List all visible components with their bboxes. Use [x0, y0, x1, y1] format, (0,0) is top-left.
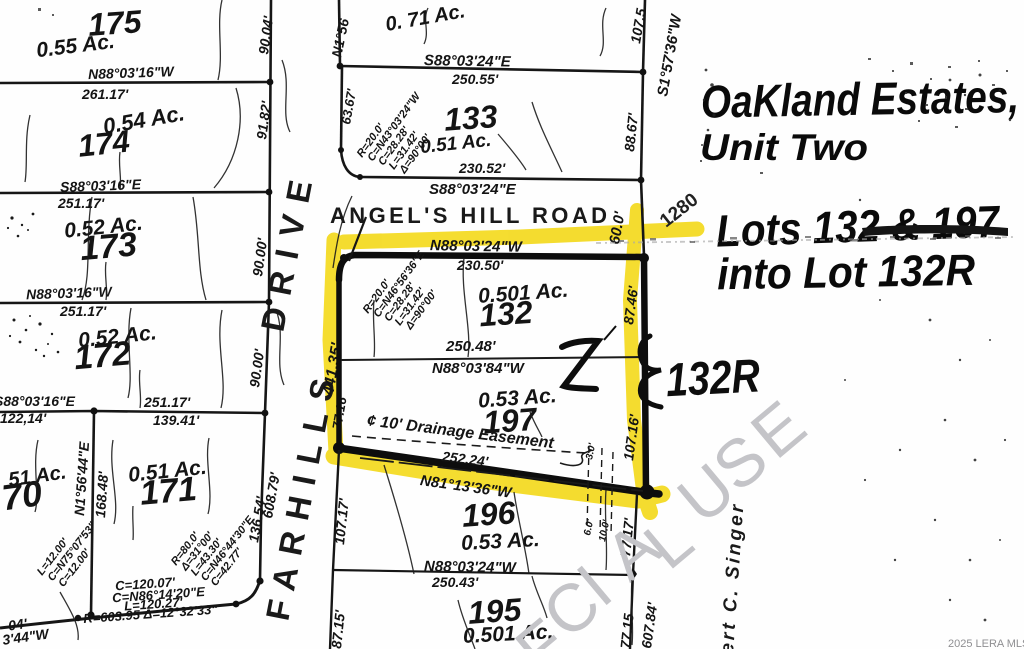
svg-text:N88°03'84"W: N88°03'84"W — [432, 360, 526, 377]
svg-text:132R: 132R — [665, 348, 762, 406]
svg-text:250.43': 250.43' — [431, 574, 479, 590]
svg-text:into Lot 132R: into Lot 132R — [717, 246, 976, 299]
svg-text:139.41': 139.41' — [153, 412, 200, 428]
svg-text:251.17': 251.17' — [59, 303, 107, 319]
svg-text:168.48': 168.48' — [92, 470, 111, 518]
svg-text:174: 174 — [76, 124, 131, 164]
svg-text:122,14': 122,14' — [0, 410, 47, 426]
svg-text:OaKland Estates,: OaKland Estates, — [701, 70, 1020, 128]
svg-text:250.55': 250.55' — [451, 71, 499, 87]
svg-text:251.17': 251.17' — [143, 394, 191, 410]
svg-text:S88°03'24"E: S88°03'24"E — [424, 52, 512, 71]
svg-text:251.17': 251.17' — [57, 195, 105, 211]
svg-text:2025 LERA MLS: 2025 LERA MLS — [948, 638, 1024, 649]
svg-text:S88°03'16"E: S88°03'16"E — [0, 393, 76, 409]
svg-text:N88°03'16"W: N88°03'16"W — [88, 63, 176, 82]
svg-text:N88°03'16"W: N88°03'16"W — [26, 283, 114, 302]
svg-text:ANGEL'S HILL ROAD: ANGEL'S HILL ROAD — [330, 203, 611, 228]
svg-text:S88°03'16"E: S88°03'16"E — [60, 176, 142, 195]
svg-text:261.17': 261.17' — [81, 86, 129, 102]
svg-text:171: 171 — [138, 470, 198, 513]
svg-text:Unit Two: Unit Two — [700, 127, 868, 168]
svg-text:N88°03'24"W: N88°03'24"W — [430, 237, 524, 256]
svg-text:70: 70 — [0, 472, 45, 518]
svg-text:250.48': 250.48' — [445, 338, 496, 355]
svg-text:0.53 Ac.: 0.53 Ac. — [461, 528, 541, 555]
svg-text:196: 196 — [461, 494, 517, 534]
svg-text:132: 132 — [478, 294, 534, 334]
svg-text:230.52': 230.52' — [458, 160, 506, 176]
svg-text:172: 172 — [73, 334, 133, 377]
svg-text:S88°03'24"E: S88°03'24"E — [429, 181, 517, 198]
